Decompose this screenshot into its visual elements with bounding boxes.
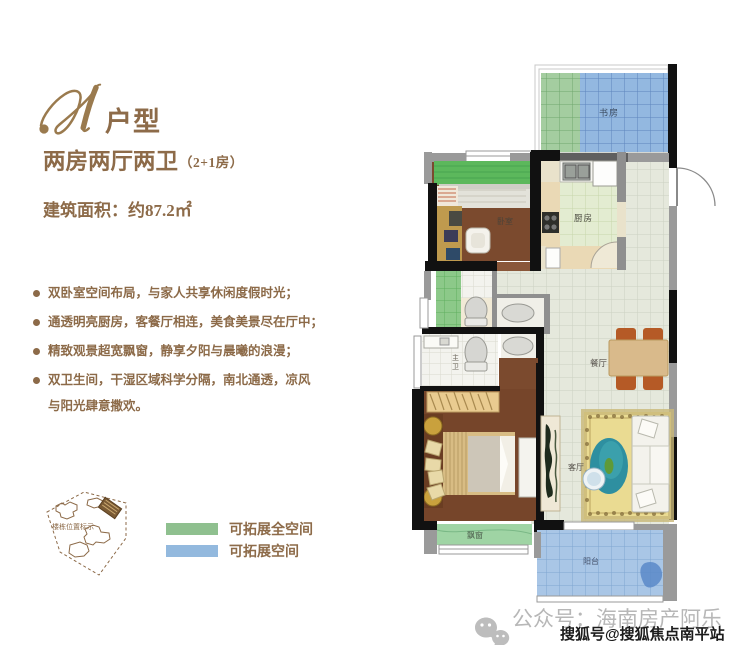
svg-text:厨房: 厨房: [574, 213, 593, 223]
svg-text:阳台: 阳台: [583, 556, 599, 566]
svg-text:餐厅: 餐厅: [590, 358, 608, 368]
svg-text:客厅: 客厅: [568, 462, 584, 472]
svg-text:书房: 书房: [599, 107, 619, 118]
svg-text:飘窗: 飘窗: [467, 530, 483, 540]
svg-text:卫: 卫: [452, 363, 459, 371]
svg-text:楼栋位置标示: 楼栋位置标示: [52, 522, 94, 531]
svg-text:卧室: 卧室: [497, 216, 513, 226]
svg-text:主: 主: [452, 353, 459, 362]
